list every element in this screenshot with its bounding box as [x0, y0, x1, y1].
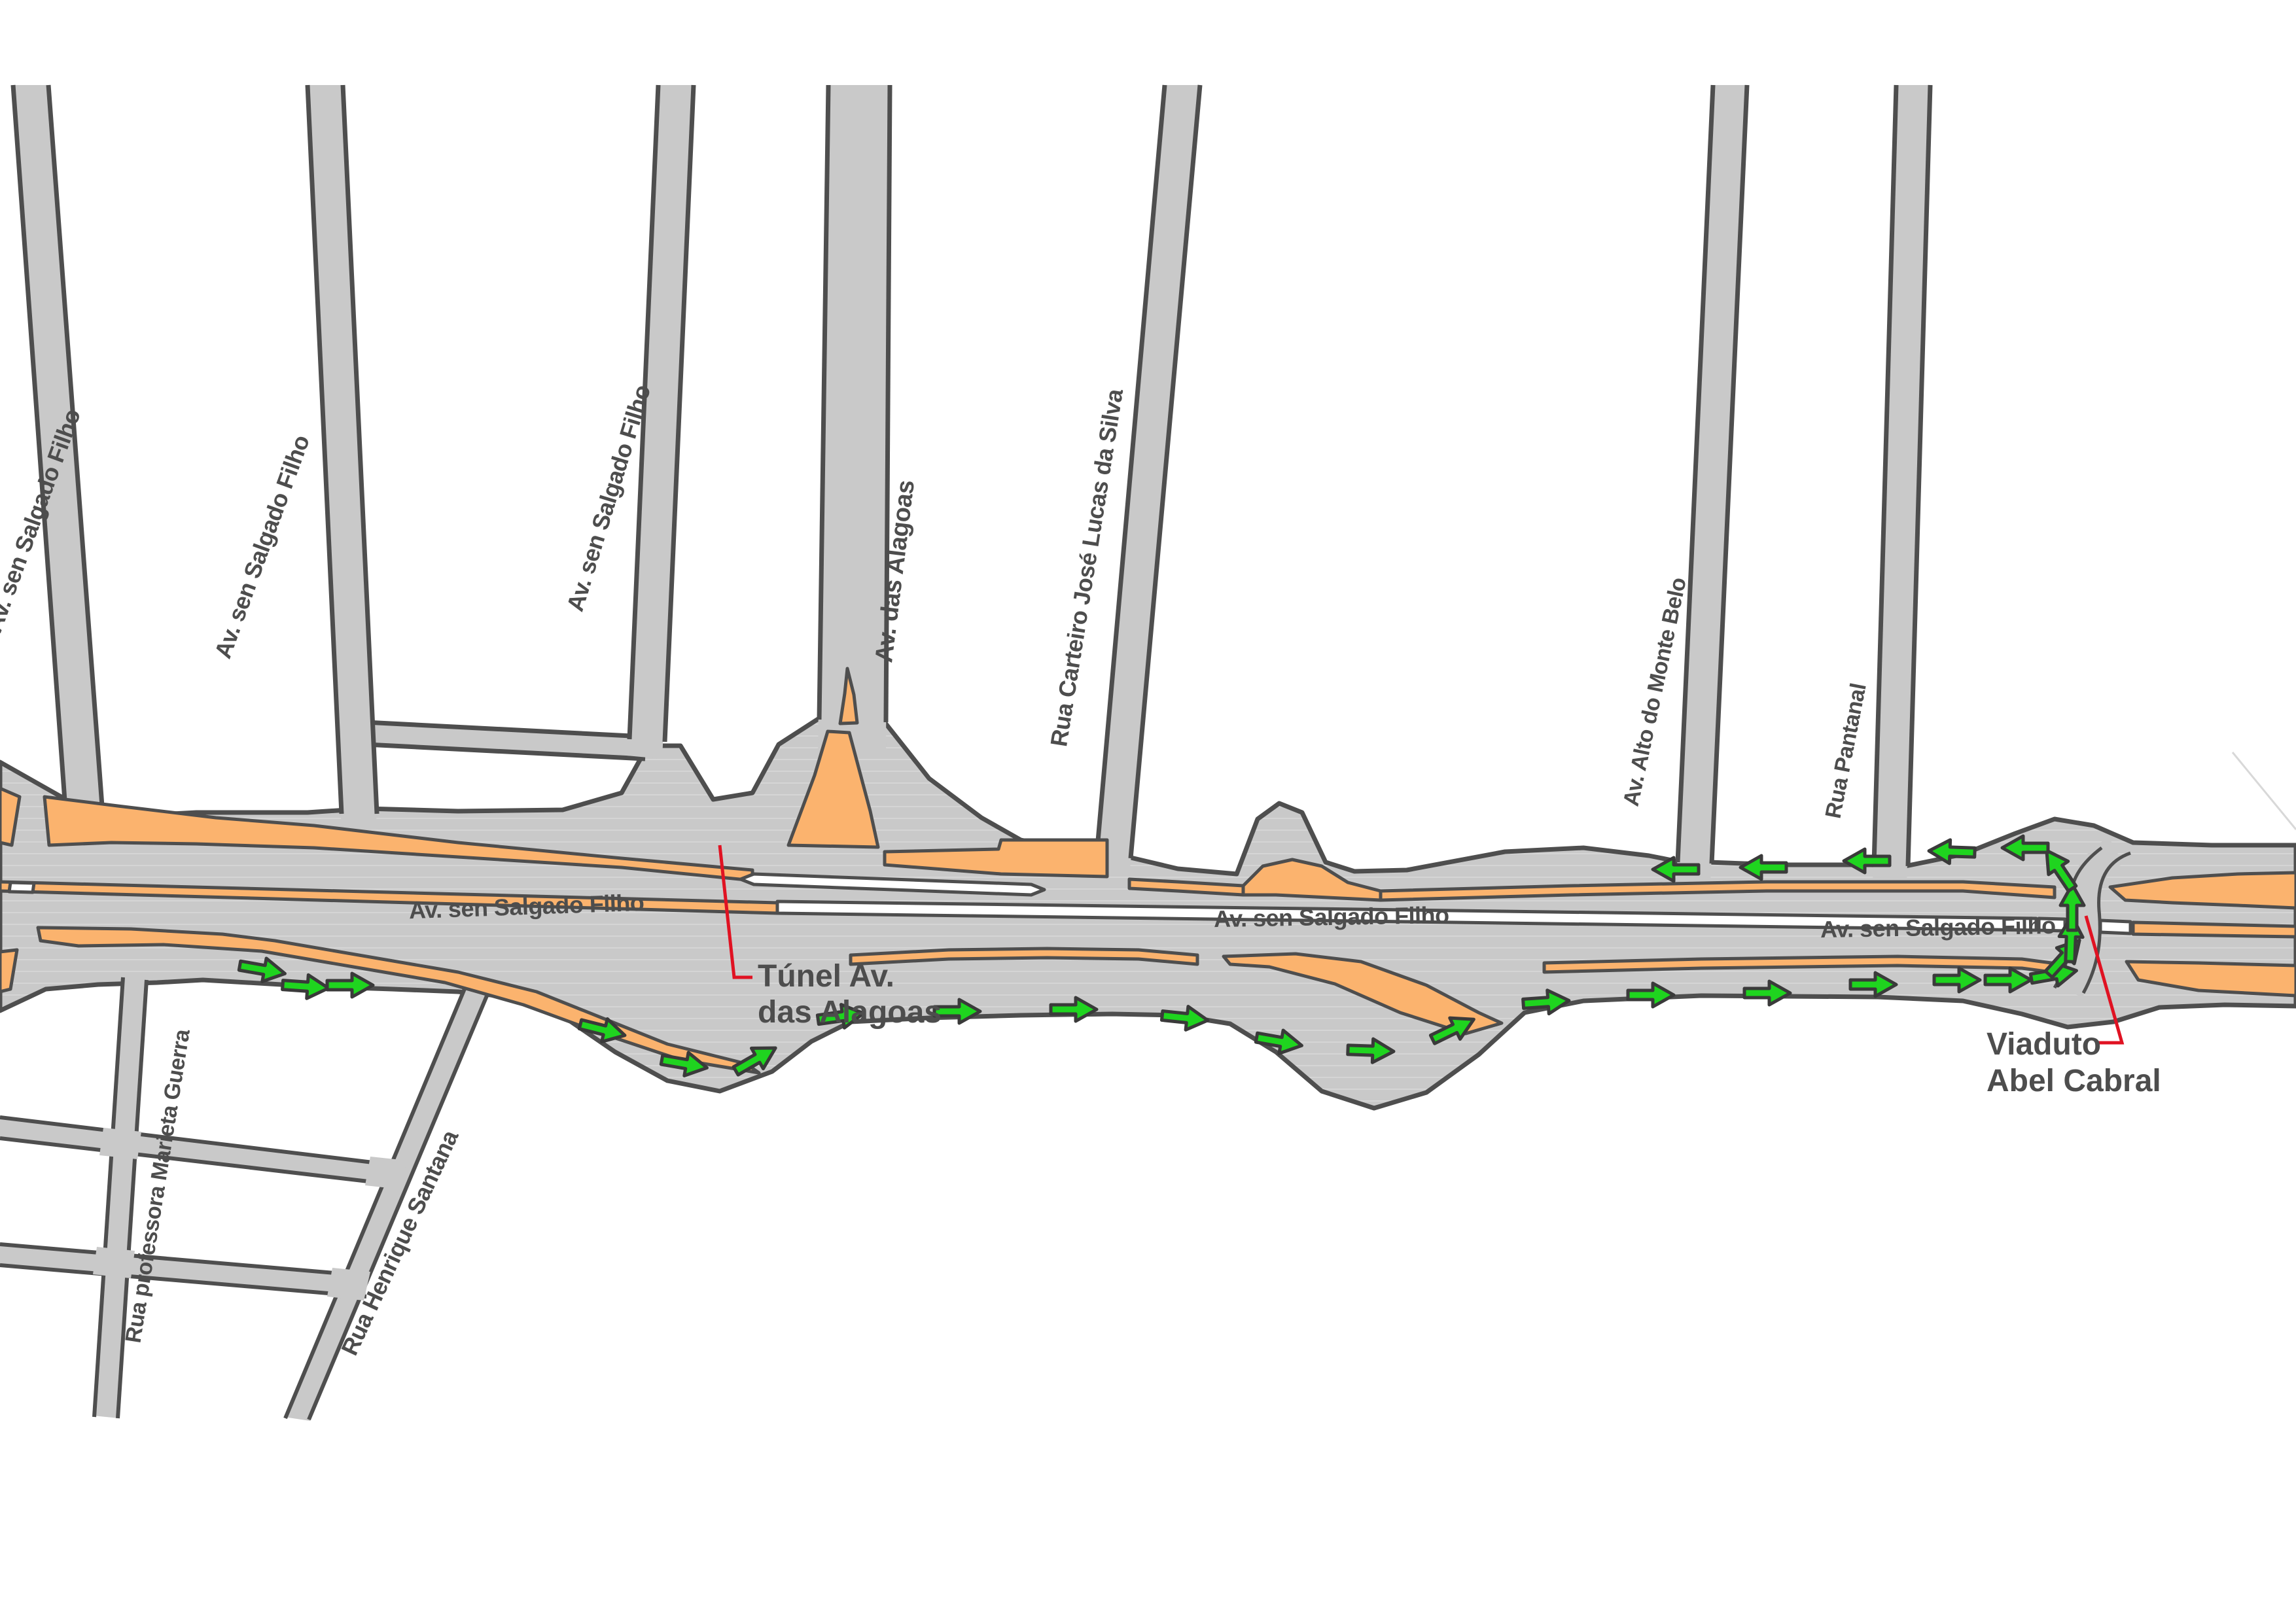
- viaduct-label-line: Abel Cabral: [1987, 1064, 2161, 1098]
- road-label: Av. sen Salgado Filho: [209, 432, 315, 662]
- median-central-orange-east: [2133, 922, 2296, 937]
- viaduct-label-line: Viaduto: [1987, 1027, 2101, 1062]
- median-central-gap: [9, 882, 34, 892]
- tunnel-label-line: das Alagoas: [758, 995, 942, 1030]
- henrique-edge: [309, 986, 491, 1420]
- parcel-boundary-line: [2233, 752, 2296, 829]
- viaduct-deck-east: [2100, 920, 2130, 934]
- junction-patch: [365, 1157, 407, 1189]
- road-label: Av. sen Salgado Filho: [1820, 912, 2056, 943]
- road-salgado-filho-v2: [308, 85, 377, 832]
- road-rua-pantanal: [1873, 85, 1930, 886]
- map-canvas: Túnel Av.das AlagoasViadutoAbel Cabral A…: [0, 0, 2296, 1623]
- road-label: Rua Pantanal: [1821, 682, 1871, 821]
- tunnel-label-line: Túnel Av.: [758, 959, 894, 994]
- traffic-map: Túnel Av.das AlagoasViadutoAbel Cabral A…: [0, 0, 2296, 1623]
- road-henrique-santana: [284, 981, 492, 1421]
- road-connector: [364, 721, 645, 760]
- junction-patch: [99, 1128, 141, 1159]
- road-grid-horizontal-1: [0, 1116, 380, 1184]
- junction-patch: [93, 1247, 135, 1278]
- road-alto-monte-belo: [1676, 85, 1747, 883]
- henrique-edge: [285, 983, 467, 1418]
- road-label: Av. sen Salgado Filho: [1214, 901, 1449, 932]
